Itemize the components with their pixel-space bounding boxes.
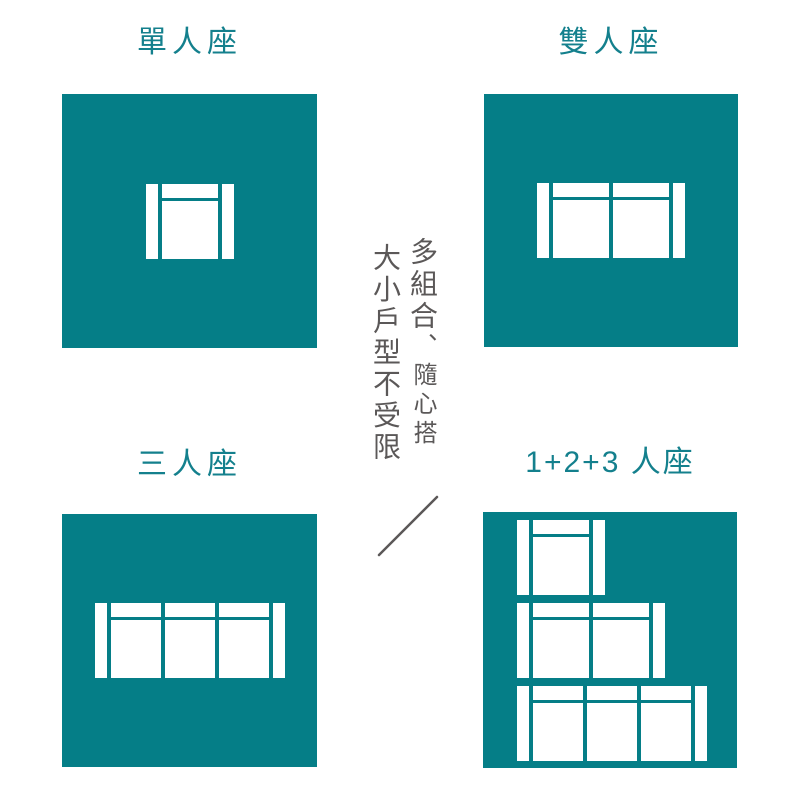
panel-square-triple-seater (62, 514, 317, 767)
panel-square-double-seater (484, 94, 738, 347)
vertical-text-right-primary: 多組合 (407, 237, 438, 333)
panel-square-single-seater (62, 94, 317, 348)
sofa-configurations-infographic: 單人座 雙人座 三人座 1+2+3 人座 多組合、隨心搭 大小戶型不受限 (0, 0, 800, 800)
diagonal-slash-icon (374, 492, 442, 560)
vertical-text-right-secondary: 、隨心搭 (409, 333, 436, 449)
panel-title-combo-1-2-3: 1+2+3 人座 (483, 446, 737, 480)
panel-title-single-seater: 單人座 (62, 26, 317, 60)
panel-square-combo-1-2-3 (483, 512, 737, 768)
sofa-1-2-3-combo-top-view-icon (517, 520, 707, 761)
sofa-3-seat-top-view-icon (95, 603, 285, 678)
panel-title-triple-seater: 三人座 (62, 448, 317, 482)
sofa-2-seat-top-view-icon (537, 183, 685, 258)
vertical-text-right-column: 多組合、隨心搭 (408, 237, 436, 449)
vertical-text-left-column: 大小戶型不受限 (371, 243, 399, 464)
sofa-1-seat-top-view-icon (146, 184, 234, 259)
panel-title-double-seater: 雙人座 (484, 26, 738, 60)
